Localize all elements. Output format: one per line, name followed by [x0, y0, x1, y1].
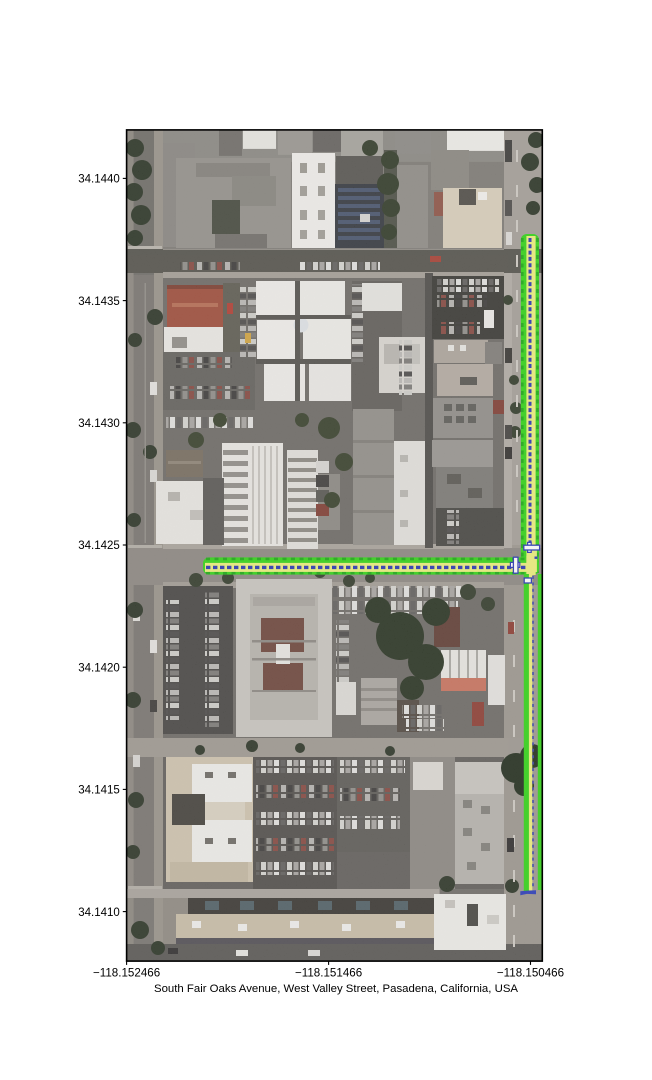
svg-text:34.1420: 34.1420	[78, 662, 120, 674]
svg-text:−118.151466: −118.151466	[295, 967, 362, 980]
svg-text:−118.152466: −118.152466	[93, 967, 160, 980]
svg-text:34.1440: 34.1440	[78, 174, 120, 186]
svg-text:34.1425: 34.1425	[78, 540, 120, 552]
svg-text:−118.150466: −118.150466	[497, 967, 564, 980]
svg-text:34.1415: 34.1415	[78, 785, 120, 797]
svg-text:34.1430: 34.1430	[78, 418, 120, 430]
svg-text:34.1435: 34.1435	[78, 296, 120, 308]
svg-text:34.1410: 34.1410	[78, 907, 120, 919]
svg-text:South Fair Oaks Avenue, West V: South Fair Oaks Avenue, West Valley Stre…	[154, 983, 518, 995]
